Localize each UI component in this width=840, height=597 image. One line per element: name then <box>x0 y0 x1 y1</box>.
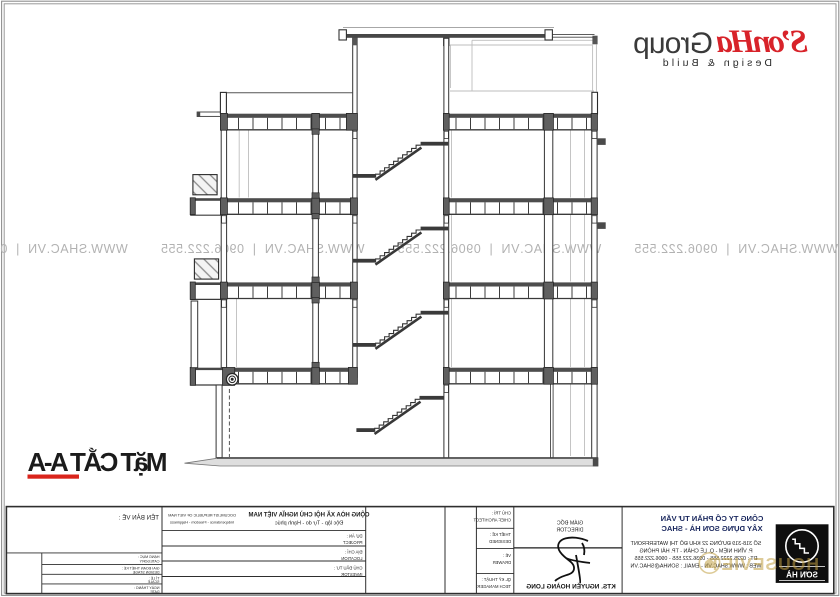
svg-text:DESIGN STAGE: DESIGN STAGE <box>132 571 159 575</box>
svg-text:Independence - Freedom - Happi: Independence - Freedom - Happiness <box>170 521 234 525</box>
svg-text:CHỦ TRÌ :: CHỦ TRÌ : <box>492 511 511 516</box>
svg-text:CỘNG HÒA XÃ HỘI CHỦ NGHĨA VIỆT: CỘNG HÒA XÃ HỘI CHỦ NGHĨA VIỆT NAM <box>249 511 370 519</box>
svg-text:GIÁM ĐỐC: GIÁM ĐỐC <box>557 520 583 527</box>
svg-text:S’onHa: S’onHa <box>716 24 808 60</box>
svg-text:CHỦ ĐẦU TƯ :: CHỦ ĐẦU TƯ : <box>334 566 363 571</box>
svg-text:CÔNG TY CỔ PHẦN TƯ VẤN: CÔNG TY CỔ PHẦN TƯ VẤN <box>661 513 764 523</box>
svg-text:HẠNG MỤC :: HẠNG MỤC : <box>138 555 160 559</box>
svg-text:Group: Group <box>633 27 713 60</box>
svg-text:DESIGNED: DESIGNED <box>489 539 511 544</box>
svg-text:CATEGORY: CATEGORY <box>139 560 159 564</box>
svg-text:TECH MANAGER: TECH MANAGER <box>477 584 511 589</box>
svg-text:INVESTOR: INVESTOR <box>341 572 362 577</box>
svg-text:DATE: DATE <box>150 590 160 594</box>
svg-text:LOCATION: LOCATION <box>341 556 362 561</box>
svg-text:KTS. NGUYỄN HOÀNG LONG: KTS. NGUYỄN HOÀNG LONG <box>526 582 616 591</box>
svg-text:VẼ :: VẼ : <box>503 553 511 558</box>
svg-text:Design & Build: Design & Build <box>660 57 772 69</box>
svg-text:DỰ ÁN :: DỰ ÁN : <box>347 534 363 539</box>
svg-text:HOUSEVIET: HOUSEVIET <box>709 554 819 574</box>
svg-text:THIẾT KẾ :: THIẾT KẾ : <box>490 532 511 537</box>
svg-text:DOCUMLIST REPUBLIC OF VIET NAM: DOCUMLIST REPUBLIC OF VIET NAM <box>168 514 236 518</box>
svg-text:XÂY DỰNG SƠN HÀ - SHAC: XÂY DỰNG SƠN HÀ - SHAC <box>661 524 763 533</box>
svg-text:DIRECTOR: DIRECTOR <box>556 528 583 534</box>
svg-text:WWW.SHAC.VN | 0906.222.555: WWW.SHAC.VN | 0906.222.555 WWW.SHAC.VN |… <box>0 242 838 256</box>
svg-text:QL KỸ THUẬT :: QL KỸ THUẬT : <box>482 577 511 582</box>
svg-text:PROJECT: PROJECT <box>343 540 363 545</box>
svg-text:SCALE: SCALE <box>147 580 159 584</box>
svg-text:DRAWER: DRAWER <box>493 560 511 565</box>
svg-text:MặT CẮT A-A: MặT CẮT A-A <box>27 447 167 477</box>
svg-text:TÊN BẢN VẼ :: TÊN BẢN VẼ : <box>118 514 159 522</box>
svg-text:Độc lập - Tự do - Hạnh phúc: Độc lập - Tự do - Hạnh phúc <box>275 521 344 527</box>
svg-text:CHIEF ARCHITECT: CHIEF ARCHITECT <box>473 518 511 523</box>
svg-text:ĐỊA CHỈ :: ĐỊA CHỈ : <box>345 550 362 555</box>
svg-text:SỐ 318-319 ĐƯỜNG 22 KHU ĐÔ THỊ: SỐ 318-319 ĐƯỜNG 22 KHU ĐÔ THỊ WATERFRON… <box>630 540 761 547</box>
